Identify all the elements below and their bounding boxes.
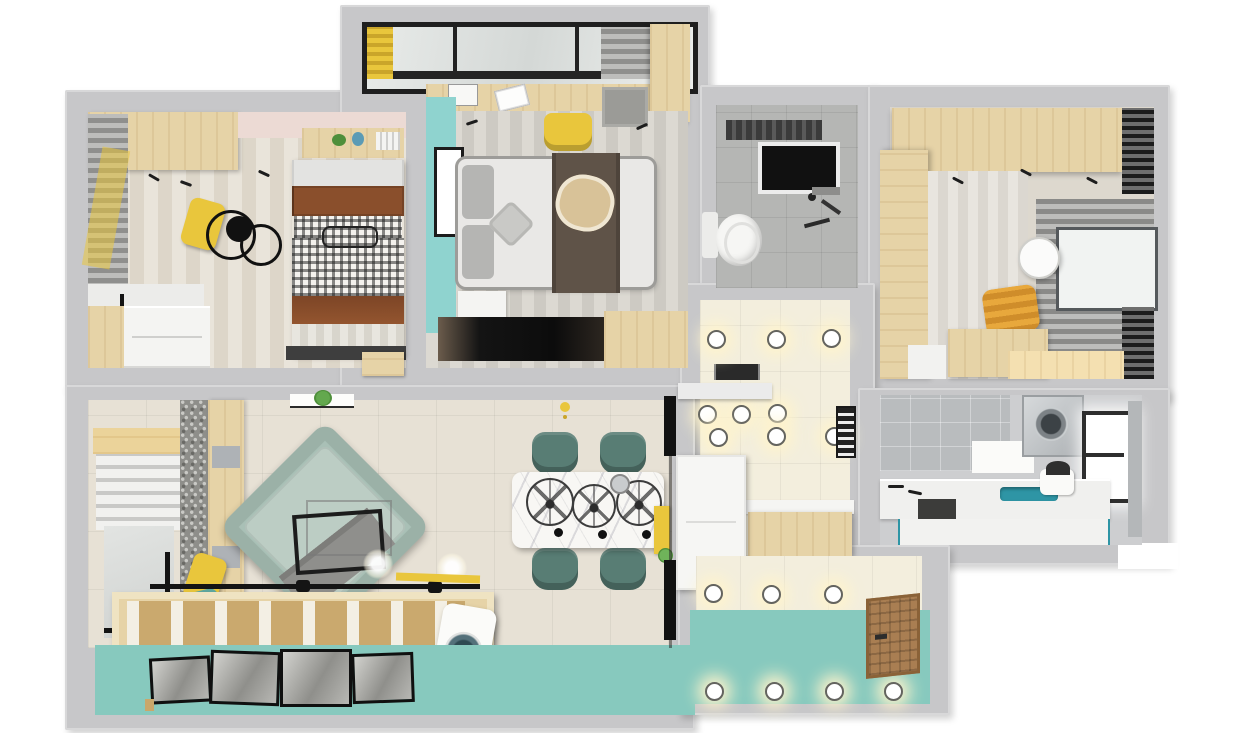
white-pillows: [292, 160, 404, 186]
wire-pendant-lamp: [572, 484, 616, 528]
glass-partition-post: [664, 396, 676, 456]
glass-partition-post: [664, 560, 676, 640]
floor-light: [825, 682, 844, 701]
white-cabinet-corner: [908, 345, 946, 379]
framed-photo: [209, 650, 281, 706]
master-bed: [458, 159, 654, 287]
yellow-sideboard: [654, 506, 670, 554]
ceiling-light-dash: [1086, 176, 1098, 184]
white-counter: [880, 479, 1110, 519]
room-bedroom-2: [88, 112, 406, 368]
toilet-seat: [724, 222, 760, 264]
books: [376, 132, 400, 150]
wire-pendant-lamp: [526, 478, 574, 526]
rod-joint: [296, 580, 310, 592]
gray-pillow: [462, 225, 494, 279]
round-mirror: [1018, 237, 1060, 279]
small-yellow-pendant: [560, 402, 570, 412]
ceiling-light-dash: [258, 170, 270, 178]
faucet: [888, 485, 904, 488]
ceiling-light: [704, 584, 723, 603]
ceiling-light-dash: [180, 180, 192, 187]
brown-throw: [292, 296, 404, 324]
room-study: [890, 107, 1154, 379]
black-console: [714, 364, 760, 380]
wall-shelf: [812, 187, 840, 195]
master-wardrobe-column: [650, 24, 690, 122]
small-yellow-object: [145, 699, 154, 711]
blue-vase: [352, 132, 364, 146]
drawer-line: [132, 336, 202, 338]
gray-tile-band: [1128, 401, 1142, 537]
hanging-plant: [314, 390, 332, 406]
cabinet-seam: [686, 521, 736, 523]
gray-rug: [602, 87, 648, 127]
exhaust-unit: [726, 120, 822, 140]
side-desk: [1008, 351, 1124, 379]
cabinet-fronts: [898, 519, 1110, 545]
black-blinds: [1122, 307, 1154, 379]
wall-notch: [1118, 543, 1178, 569]
tv-niche: [438, 317, 604, 361]
door-handle: [875, 634, 887, 640]
lamp-bulb: [598, 530, 607, 539]
gray-pillow: [462, 165, 494, 219]
ceiling-light: [762, 585, 781, 604]
double-bed: [292, 160, 404, 356]
window-mullion: [1086, 453, 1124, 457]
ceiling-light-dash: [148, 173, 160, 182]
framed-photo: [149, 655, 212, 704]
dresser-wood-side: [88, 306, 124, 368]
dresser: [88, 306, 210, 368]
plant: [332, 134, 346, 146]
dining-chair: [532, 432, 578, 474]
entry-door: [866, 593, 920, 679]
brown-pillows: [292, 186, 404, 216]
wood-beam-band: [93, 428, 185, 454]
floor-light: [765, 682, 784, 701]
black-blinds: [1122, 108, 1154, 194]
basket: [322, 226, 378, 248]
hallway-wall-niche: [678, 383, 772, 399]
master-desk-along-window: [426, 84, 688, 111]
yellow-curtain: [367, 27, 393, 79]
ceiling-light: [707, 330, 726, 349]
ceiling-light-dash: [466, 119, 478, 126]
metal-kettle: [610, 474, 630, 494]
open-book: [494, 83, 530, 112]
ceiling-light: [768, 404, 787, 423]
window: [1056, 227, 1158, 311]
lamp-bulb: [642, 530, 651, 539]
vent-grille: [836, 406, 856, 458]
gray-curtain: [601, 27, 653, 79]
ceiling-lamp-disc: [226, 216, 252, 242]
rod-joint: [428, 581, 442, 593]
toilet-bowl: [716, 214, 762, 266]
daybed-slats: [127, 601, 465, 649]
heater-cap: [1046, 461, 1070, 475]
fabric-box: [212, 446, 240, 468]
dining-chair: [532, 548, 578, 590]
ceiling-light: [767, 330, 786, 349]
ceiling-light: [732, 405, 751, 424]
ceiling-light: [767, 427, 786, 446]
star-pillow: [487, 200, 535, 248]
washer-drum: [1034, 407, 1068, 441]
room-master-bedroom: [426, 111, 688, 368]
ceiling-light: [824, 585, 843, 604]
washing-machine: [1022, 395, 1084, 457]
floor-light: [705, 682, 724, 701]
roman-blind: [96, 454, 186, 530]
framed-photo: [280, 649, 352, 707]
floor-plan-render: [0, 0, 1254, 733]
ceiling-light: [822, 329, 841, 348]
wood-stool: [362, 352, 404, 376]
floor-light: [884, 682, 903, 701]
yellow-chair: [544, 113, 592, 151]
floor-light: [363, 549, 393, 579]
room-south-balcony: [95, 645, 695, 715]
wood-tv-panel: [604, 311, 688, 368]
framed-photo: [351, 652, 415, 704]
ceiling-light: [709, 428, 728, 447]
ceiling-light: [698, 405, 717, 424]
dining-chair: [600, 548, 646, 590]
wall-fixture: [821, 199, 841, 215]
wood-sideboard: [748, 512, 852, 556]
wall-fixture: [804, 218, 830, 229]
dining-chair: [600, 432, 646, 474]
lamp-bulb: [554, 528, 563, 537]
room-laundry: [880, 395, 1142, 545]
